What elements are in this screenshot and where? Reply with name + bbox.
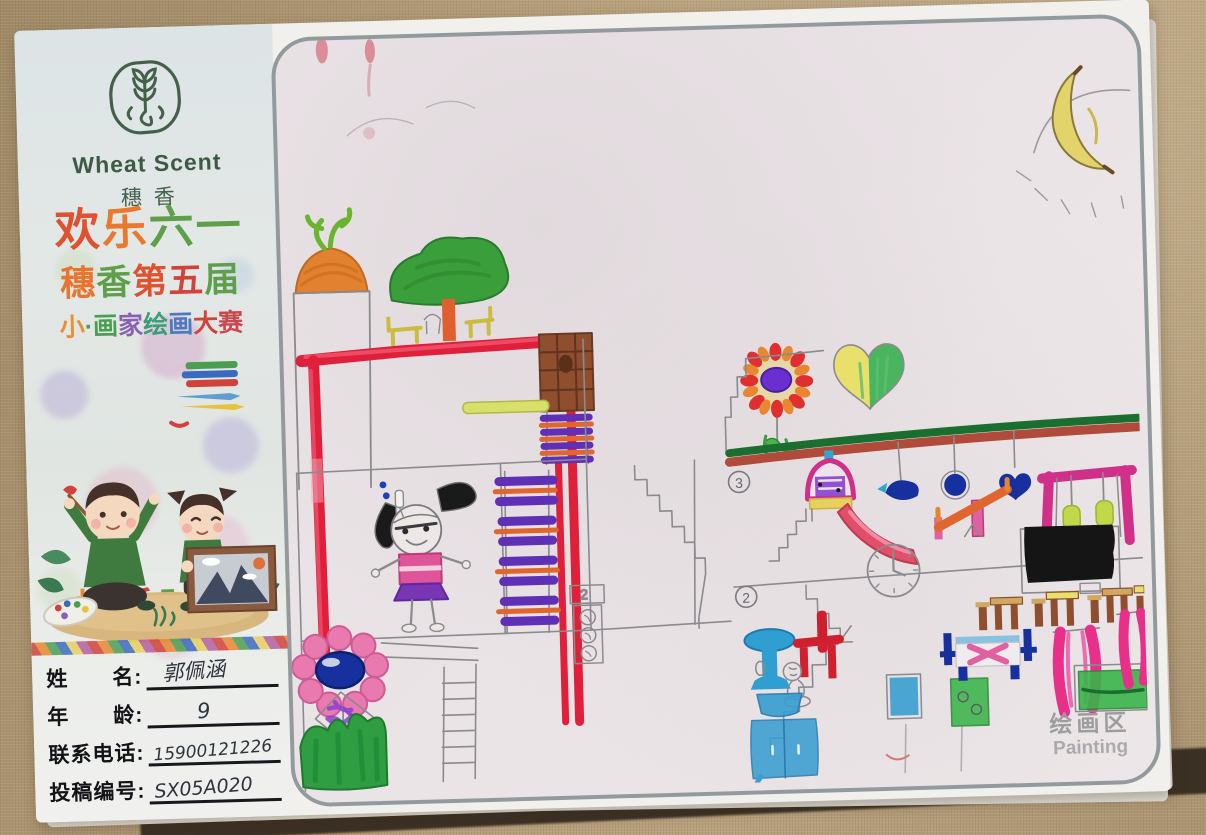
painting-area-watermark: 绘画区 Painting — [1049, 709, 1131, 759]
girl-drawing — [369, 479, 480, 633]
photo-of-contest-drawing: Wheat Scent 穗香 欢乐六一 穗香第五届 小·画家绘画大赛 — [0, 0, 1206, 835]
form-row-age: 年 龄: 9 — [47, 698, 280, 731]
contest-title-line3: 小·画家绘画大赛 — [22, 310, 281, 342]
title-char: 第 — [132, 262, 169, 302]
clock — [867, 544, 920, 597]
purple-ladder — [495, 470, 559, 634]
chimney — [539, 333, 594, 411]
contest-title-block: 欢乐六一 穗香第五届 小·画家绘画大赛 — [19, 202, 281, 356]
title-char: 欢 — [54, 204, 102, 256]
entry-code-value: SX05A020 — [154, 773, 254, 803]
elevator-label: 2 — [580, 586, 588, 602]
entry-form: 姓 名: 郭佩涵 年 龄: 9 联系电话: 15900121226 — [46, 660, 282, 818]
leaf-decor-left — [37, 549, 72, 593]
bathtub — [757, 693, 803, 717]
watermark-cn: 绘画区 — [1049, 709, 1131, 737]
title-char: 赛 — [218, 309, 244, 338]
banana-moon — [1014, 66, 1144, 219]
title-char: 小 — [59, 313, 85, 342]
title-char: 香 — [96, 263, 133, 303]
title-char: 五 — [168, 261, 205, 301]
title-char: 届 — [204, 260, 241, 300]
yellow-bar — [463, 400, 549, 413]
name-value: 郭佩涵 — [161, 653, 226, 688]
crayons-pencils-icon — [163, 354, 255, 430]
pencil-ladder — [440, 664, 479, 781]
form-row-name: 姓 名: 郭佩涵 — [46, 660, 279, 693]
kids-illustration — [32, 454, 283, 646]
brand-name-en: Wheat Scent — [18, 147, 277, 181]
title-char: 大 — [193, 309, 219, 338]
title-char: 六 — [148, 201, 196, 253]
entry-code-field[interactable]: SX05A020 — [149, 774, 282, 805]
floor3-label: 3 — [735, 475, 743, 491]
blue-cabinet — [750, 719, 819, 789]
title-char: 一 — [195, 200, 243, 252]
age-label: 年 龄: — [47, 699, 144, 732]
phone-field[interactable]: 15900121226 — [148, 736, 281, 767]
heart-yellow-green — [833, 343, 905, 410]
title-char: 乐 — [101, 202, 149, 254]
tree — [386, 236, 510, 345]
brand-logo: Wheat Scent 穗香 — [15, 52, 277, 215]
form-row-entry-code: 投稿编号: SX05A020 — [49, 774, 282, 807]
framed-painting — [187, 546, 277, 612]
contest-title-line1: 欢乐六一 — [19, 202, 278, 254]
bench-left — [388, 318, 421, 345]
roof-stripe — [729, 418, 1140, 462]
name-field[interactable]: 郭佩涵 — [146, 660, 279, 691]
title-char: 画 — [168, 310, 194, 339]
contest-sidebar: Wheat Scent 穗香 欢乐六一 穗香第五届 小·画家绘画大赛 — [14, 24, 294, 823]
entry-code-label: 投稿编号: — [49, 775, 146, 808]
watermark-en: Painting — [1053, 736, 1129, 759]
dining-table — [939, 629, 1037, 682]
child-drawing: 2 — [275, 18, 1150, 796]
blue-sink — [744, 628, 796, 689]
contest-entry-paper: Wheat Scent 穗香 欢乐六一 穗香第五届 小·画家绘画大赛 — [14, 0, 1171, 823]
pink-smudge — [310, 459, 323, 503]
green-bed — [1074, 664, 1147, 712]
floor2-label: 2 — [742, 590, 750, 606]
title-char: 绘 — [143, 311, 169, 340]
age-field[interactable]: 9 — [147, 698, 280, 729]
title-char: 穗 — [60, 264, 97, 304]
bench-right — [466, 308, 493, 337]
black-tv — [1020, 524, 1120, 595]
sunflower — [739, 342, 815, 457]
seesaw — [933, 479, 1009, 539]
phone-label: 联系电话: — [48, 737, 145, 770]
title-char: 画 — [93, 312, 119, 341]
red-smudges — [315, 36, 377, 141]
title-char: 家 — [118, 312, 144, 341]
phone-value: 15900121226 — [153, 736, 273, 765]
purple-tower — [766, 450, 855, 561]
big-flower — [291, 625, 392, 791]
form-row-phone: 联系电话: 15900121226 — [48, 736, 281, 769]
painting-area: 2 — [270, 14, 1161, 808]
blue-window — [886, 674, 921, 719]
wheat-logo-icon — [102, 54, 188, 140]
pencil-table — [424, 314, 441, 333]
sprout — [307, 210, 350, 249]
age-value: 9 — [196, 698, 211, 723]
red-chair — [797, 610, 841, 679]
contest-title-line2: 穗香第五届 — [21, 261, 280, 303]
green-box — [951, 678, 989, 726]
name-label: 姓 名: — [46, 661, 143, 694]
